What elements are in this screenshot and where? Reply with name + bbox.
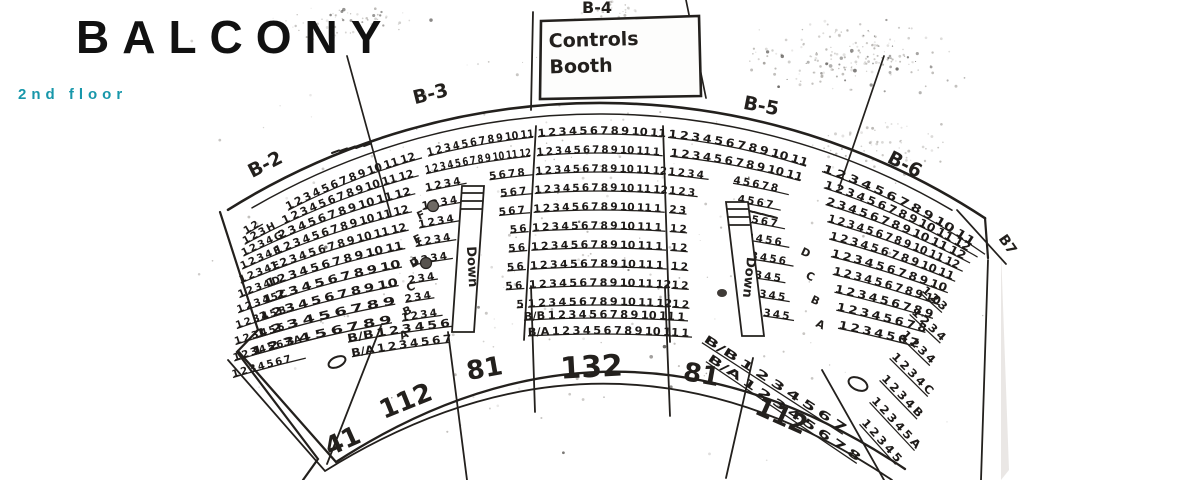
paper-edge-shade (1001, 250, 1009, 480)
seat-row-b5: 1 2 (671, 260, 689, 273)
controls-booth-line2: Booth (549, 55, 613, 79)
seat-row-b3: 5 6 (508, 242, 526, 255)
seat-row-b5: 3 4 5 (763, 307, 791, 323)
divider-line (981, 260, 988, 480)
section-label-b2: B-2 (244, 147, 286, 183)
seat-row-b4: 1 2 3 4 5 6 7 8 9 10 11 12 (534, 182, 668, 197)
capacity-label: 41 (320, 421, 365, 463)
capacity-label: 132 (559, 348, 623, 386)
stairs-down-label: Down (463, 246, 480, 288)
seat-row-b3: 5 6 (507, 261, 525, 274)
controls-booth-line1: Controls (548, 28, 638, 52)
section-label-b5: B-5 (742, 92, 781, 120)
pillar-mark (846, 374, 869, 393)
seat-row-b4: 1 2 3 4 5 6 7 8 9 10 11 12 (528, 296, 673, 310)
seat-row-b3: 5 6 (509, 223, 527, 236)
seat-row-b5: 1 2 3 4 (668, 166, 705, 182)
capacity-label: 81 (464, 351, 505, 387)
rim-tick (754, 212, 761, 214)
floor-subtitle: 2nd floor (18, 86, 127, 103)
seat-row-b4: 1 2 3 4 5 6 7 8 9 10 11 12 (535, 163, 667, 178)
seat-row-b3: 5 6 7 (498, 204, 525, 218)
section-label-b4: B-4 (582, 0, 612, 17)
marked-seat (421, 258, 432, 269)
balcony-seating-page: 1 2 3 4 5 6 7 8 9 10 11 121 2 3 4 5 6 7 … (0, 0, 1200, 480)
pillar-mark (327, 354, 348, 371)
controls-booth: ControlsBoothB-4 (540, 0, 701, 99)
seat-row-b5: 1 2 (670, 241, 688, 254)
row-letter: B (809, 293, 822, 308)
seat-row-b3: 5 6 7 8 (488, 167, 525, 183)
divider-line (531, 12, 533, 110)
seat-row-b5: 4 5 6 7 8 (732, 174, 779, 195)
seat-row-b5: 1 2 3 (668, 185, 695, 200)
section-label-b7: B7 (995, 232, 1020, 258)
marked-seat (717, 289, 727, 297)
seat-row-b5: 2 3 (669, 204, 687, 217)
divider-line (839, 56, 884, 188)
seat-row-b3: 5 (516, 298, 524, 310)
seat-row-b3: 5 6 7 (500, 185, 527, 200)
seat-row-b4: 1 2 3 4 5 6 7 8 9 10 11 (537, 125, 666, 140)
page-title: BALCONY (76, 10, 394, 64)
seat-row-b5: 1 2 (671, 279, 689, 292)
stairs-down-left: Down (452, 186, 484, 332)
seat-row-b3: 1 2 3 4 (424, 175, 461, 194)
seat-row-b5: 1 2 (672, 298, 690, 311)
capacity-label: 81 (681, 357, 722, 393)
marked-seat (428, 201, 439, 212)
seating-chart: 1 2 3 4 5 6 7 8 9 10 11 121 2 3 4 5 6 7 … (0, 0, 1200, 480)
seat-row-b4: 1 2 3 4 5 6 7 8 9 10 11 12 (529, 277, 672, 291)
rim-right-corner (985, 218, 988, 258)
seat-row-b3: 5 6 (505, 280, 523, 293)
section-label-b3: B-3 (411, 79, 451, 109)
row-letter: A (814, 317, 828, 333)
row-letter: D (799, 245, 813, 261)
seat-row-b5: 3 4 5 (758, 288, 786, 304)
row-letter: C (804, 269, 817, 284)
seat-row-b3: 1 2 3 4 (421, 194, 458, 212)
seat-row-b5: 1 2 (669, 223, 687, 236)
